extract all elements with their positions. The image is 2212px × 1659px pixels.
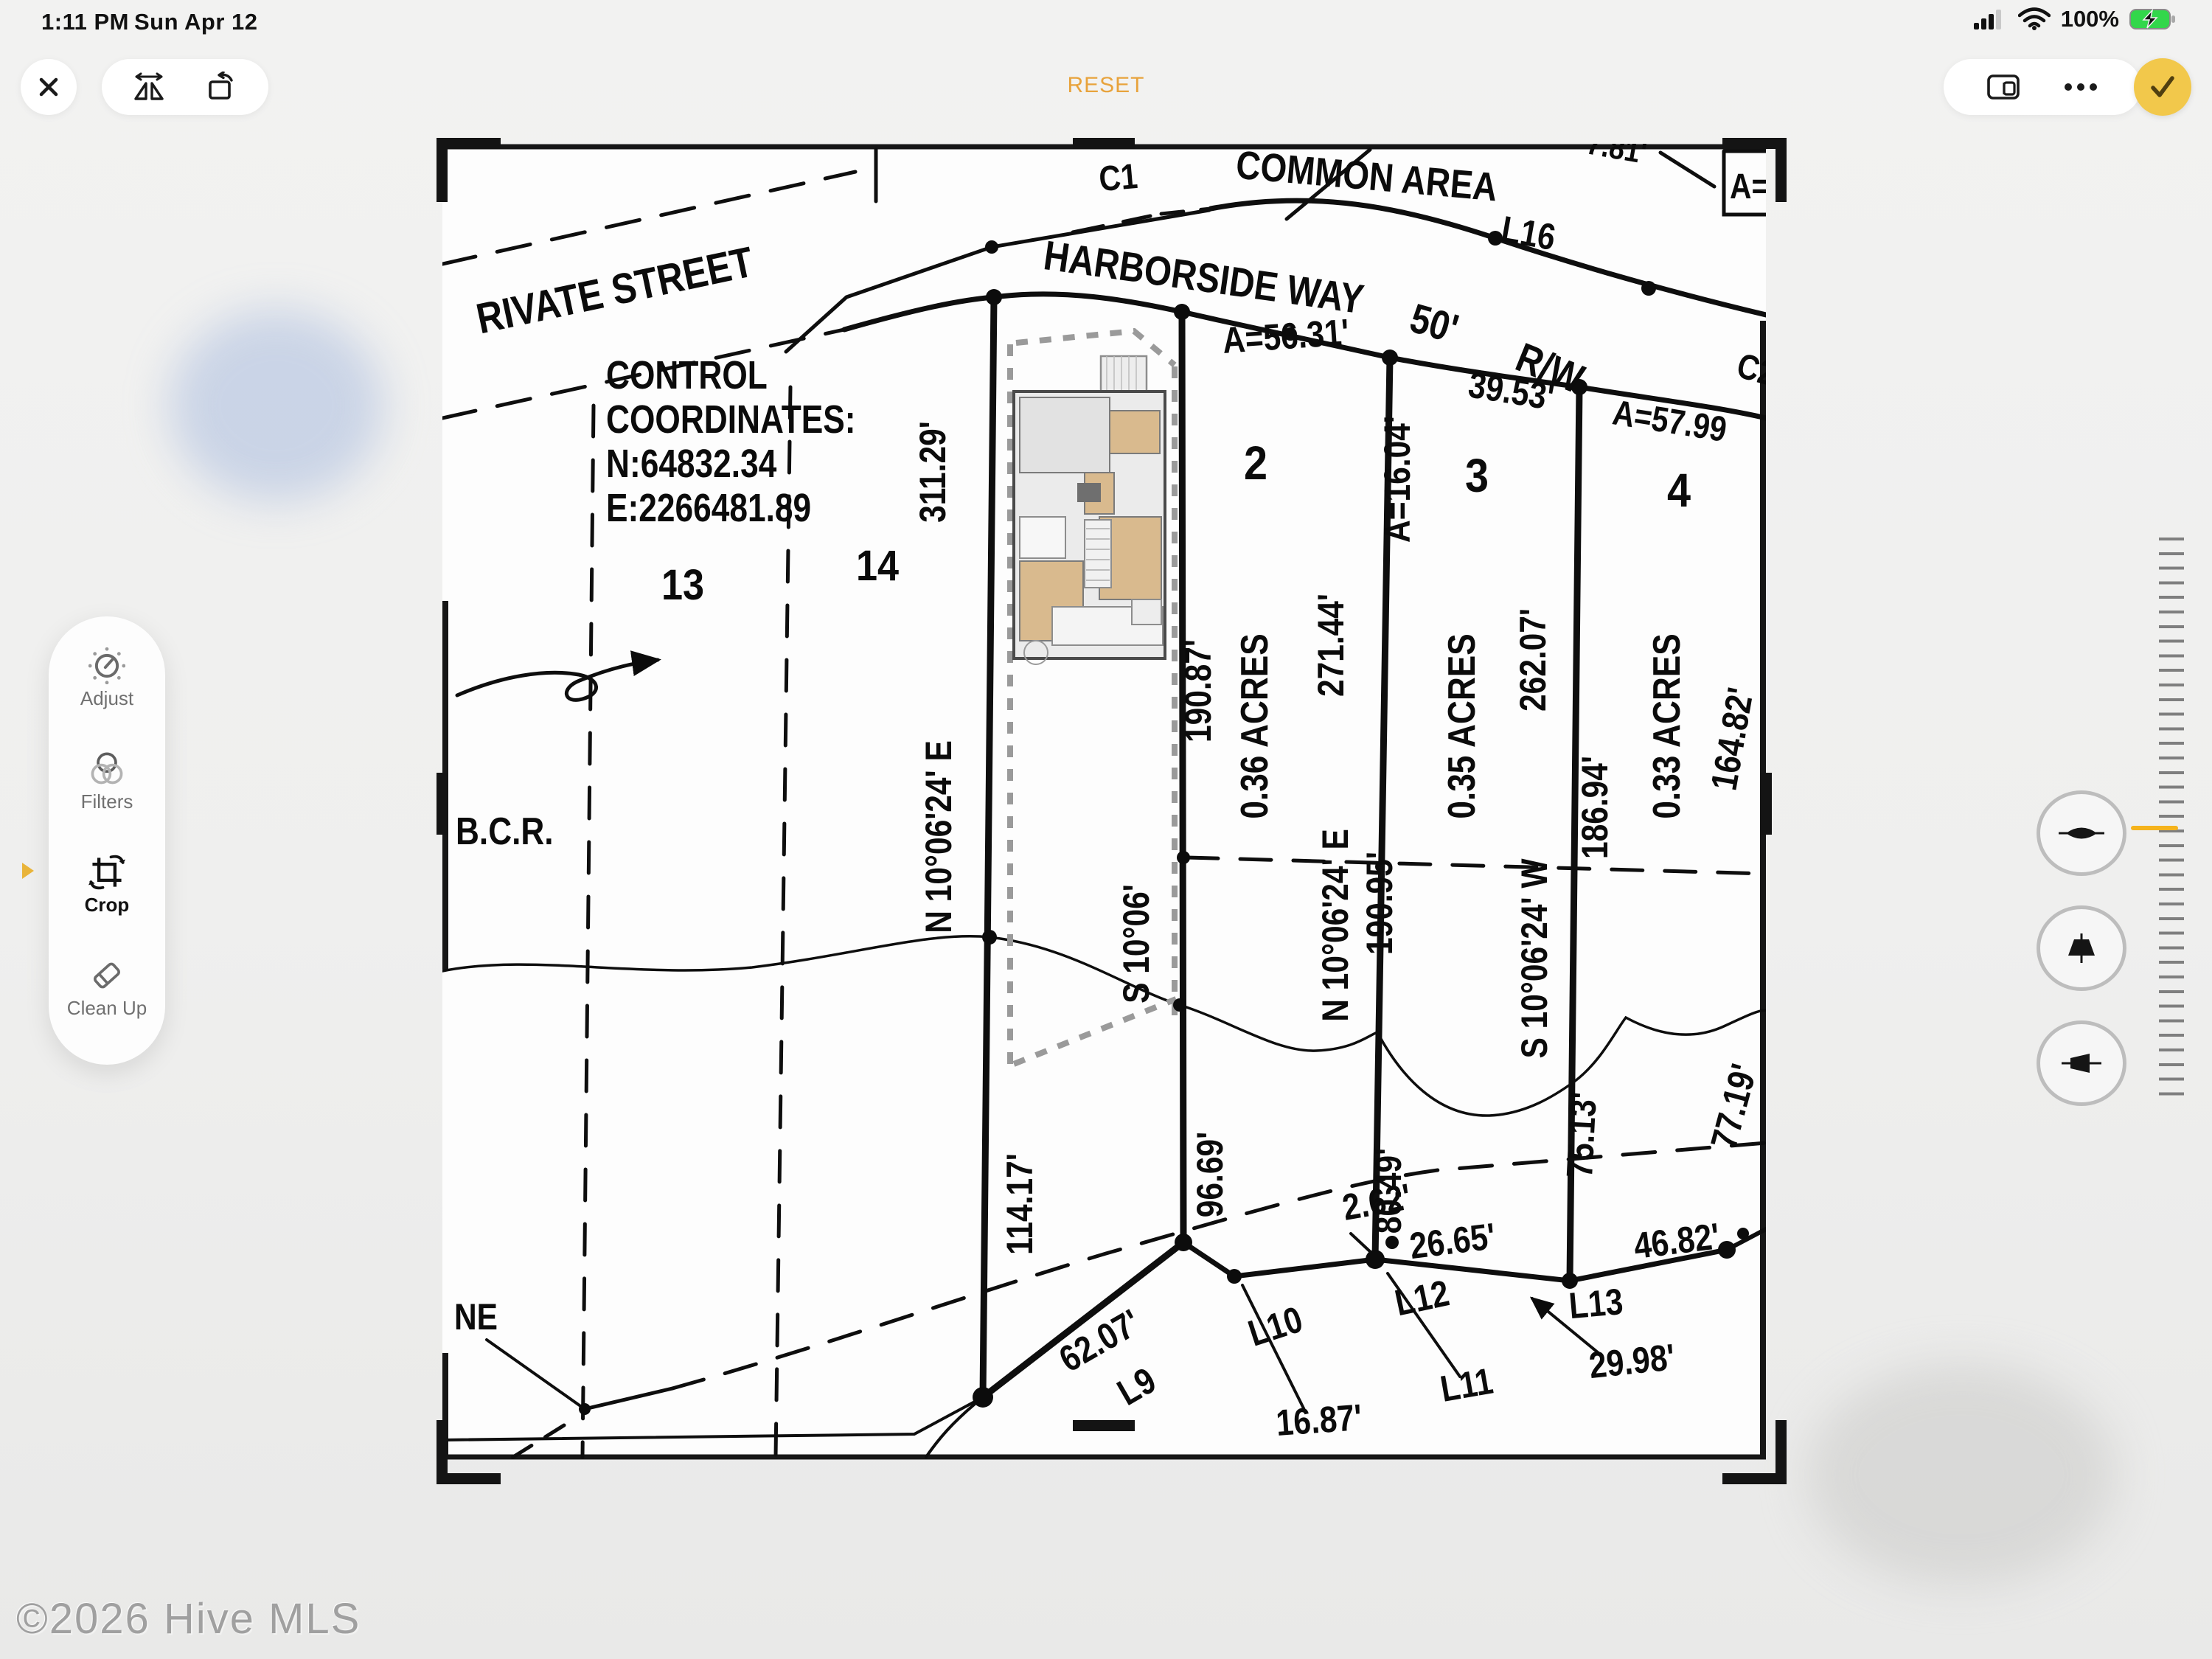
map-label-bearing-b: S 10°06': [1116, 884, 1157, 1004]
floor-plan-deck: [1101, 356, 1147, 392]
map-label-bcr: B.C.R.: [456, 810, 554, 853]
aspect-more-group: [1944, 59, 2141, 115]
map-label-2665: 26.65': [1408, 1215, 1498, 1267]
map-label-19087: 190.87': [1178, 639, 1219, 742]
map-label-18694: 186.94': [1574, 756, 1615, 859]
active-tool-marker: [22, 863, 34, 879]
node-dot: [1227, 1269, 1242, 1284]
vertical-perspective-icon: [2061, 932, 2102, 964]
map-label-c2: C2: [1733, 347, 1766, 394]
map-label-9669: 96.69': [1189, 1132, 1231, 1217]
bottom-thin-line: [926, 1397, 983, 1457]
lot-line-a: [983, 297, 994, 1397]
map-label-l13: L13: [1568, 1281, 1625, 1326]
control-line-3: N:64832.34: [606, 442, 777, 486]
map-label-bearing-c: N 10°06'24' E: [1315, 829, 1356, 1022]
status-date: Sun Apr 12: [134, 9, 258, 35]
map-label-private-street: RIVATE STREET: [473, 238, 758, 344]
map-label-16482: 164.82': [1703, 684, 1761, 793]
edit-tool-rail: Adjust Filters Crop Clean Up: [49, 616, 165, 1065]
rotate-icon[interactable]: [205, 72, 237, 102]
map-label-lot4: 4: [1667, 464, 1691, 516]
status-time: 1:11 PM: [41, 9, 129, 35]
node-dot: [1175, 1234, 1192, 1251]
straighten-button[interactable]: [2037, 790, 2126, 876]
ne-leader-line: [487, 1340, 585, 1409]
horizontal-perspective-icon: [2060, 1047, 2103, 1079]
wifi-icon: [2018, 7, 2051, 31]
status-bar: 1:11 PM Sun Apr 12 100%: [0, 0, 2212, 41]
map-label-c1: C1: [1097, 157, 1139, 199]
map-label-l12: L12: [1391, 1272, 1453, 1324]
straighten-icon: [2059, 818, 2104, 849]
plat-map-svg: RIVATE STREET HARBORSIDE WAY 50' R/W COM…: [442, 144, 1766, 1460]
node-dot: [1641, 281, 1656, 296]
map-label-ne: NE: [454, 1296, 498, 1338]
map-label-7719: 77.19': [1703, 1060, 1764, 1153]
floor-plan-stairs: [1085, 520, 1111, 588]
node-dot: [1385, 1236, 1399, 1249]
crop-handle-left[interactable]: [437, 773, 448, 835]
node-dot: [986, 289, 1002, 305]
map-label-acres2: 0.36 ACRES: [1234, 633, 1276, 818]
tool-crop-label: Crop: [49, 894, 165, 917]
map-label-31129: 311.29': [912, 421, 953, 523]
node-dot: [579, 1403, 591, 1415]
floor-plan-room-tan: [1110, 411, 1160, 453]
branch-line: [1660, 153, 1714, 187]
map-label-lot2: 2: [1244, 437, 1267, 489]
map-label-a1604: A=16.04': [1377, 416, 1418, 543]
map-label-lot14: 14: [856, 541, 899, 589]
tool-adjust[interactable]: Adjust: [49, 647, 165, 710]
node-dot: [1737, 1228, 1749, 1239]
dashed-horizontal-line: [1187, 858, 1766, 874]
map-label-27144: 271.44': [1310, 594, 1352, 697]
tool-cleanup[interactable]: Clean Up: [49, 957, 165, 1020]
map-label-26207: 262.07': [1512, 608, 1554, 712]
control-line-2: COORDINATES:: [606, 397, 856, 442]
crop-handle-top-left[interactable]: [437, 138, 501, 202]
map-label-2998: 29.98': [1587, 1336, 1677, 1386]
bottom-thin-line: [442, 1397, 983, 1440]
node-dot: [1173, 998, 1186, 1012]
map-label-harborside-way: HARBORSIDE WAY: [1041, 232, 1367, 323]
floor-plan-room: [1020, 397, 1110, 473]
l10-line: [1183, 1242, 1375, 1276]
control-coordinates-block: CONTROL COORDINATES: N:64832.34 E:226648…: [606, 353, 856, 530]
aspect-ratio-icon[interactable]: [1986, 72, 2020, 102]
map-label-a5631: A=56.31': [1221, 311, 1350, 361]
map-label-l16: L16: [1498, 208, 1559, 258]
background-blur-blob: [1806, 1364, 2116, 1585]
tool-filters-label: Filters: [49, 790, 165, 813]
crop-handle-bottom-right[interactable]: [1722, 1420, 1787, 1484]
horizontal-perspective-button[interactable]: [2037, 1020, 2126, 1106]
dashed-lot-line-14: [776, 387, 790, 1457]
dashed-lot-line-13: [582, 406, 594, 1457]
battery-charging-icon: [2129, 7, 2177, 31]
lot-line-b: [1182, 312, 1183, 1242]
tool-crop[interactable]: Crop: [49, 854, 165, 917]
checkmark-icon: [2146, 72, 2179, 102]
dial-indicator: [2131, 826, 2178, 830]
straighten-dial-ruler[interactable]: [2159, 538, 2184, 1107]
vertical-perspective-button[interactable]: [2037, 905, 2126, 991]
node-dot: [985, 240, 998, 254]
map-label-l9: L9: [1110, 1359, 1163, 1413]
node-dot: [1366, 1250, 1385, 1269]
crop-photo-area[interactable]: RIVATE STREET HARBORSIDE WAY 50' R/W COM…: [442, 144, 1766, 1460]
floor-plan-overlay: [1014, 356, 1165, 664]
close-button[interactable]: [21, 59, 77, 115]
private-street-north-dashed-line: [442, 172, 855, 264]
crop-handle-top-right[interactable]: [1722, 138, 1787, 202]
node-dot: [973, 1387, 993, 1408]
floor-plan-room: [1020, 517, 1065, 558]
flip-rotate-group: [102, 59, 268, 115]
cellular-signal-icon: [1974, 7, 2008, 31]
reset-button[interactable]: RESET: [1032, 73, 1180, 98]
map-label-lot3: 3: [1465, 449, 1489, 501]
tool-filters[interactable]: Filters: [49, 751, 165, 813]
leader-262: [1351, 1234, 1373, 1254]
map-label-19095: 190.95': [1359, 852, 1400, 955]
map-label-l11: L11: [1437, 1360, 1496, 1409]
map-label-11417: 114.17': [999, 1153, 1040, 1255]
node-dot: [1177, 851, 1190, 864]
close-icon: [35, 73, 63, 101]
filters-icon: [88, 751, 125, 787]
l9-line: [983, 1242, 1183, 1397]
squiggle-arrow: [457, 660, 658, 700]
map-label-50ft: 50': [1405, 295, 1464, 352]
flip-horizontal-icon[interactable]: [133, 72, 165, 102]
map-label-1687: 16.87': [1275, 1397, 1363, 1444]
map-label-acres3: 0.35 ACRES: [1441, 633, 1484, 818]
control-line-1: CONTROL: [606, 353, 768, 397]
floor-plan-steps: [1132, 599, 1161, 625]
adjust-dial-icon: [88, 647, 125, 684]
node-dot: [1382, 349, 1398, 366]
mls-watermark: ©2026 Hive MLS: [16, 1594, 361, 1644]
node-dot: [1174, 304, 1190, 320]
background-blur-blob: [170, 310, 383, 501]
more-options-icon[interactable]: [2063, 82, 2098, 92]
battery-percent-label: 100%: [2061, 6, 2119, 32]
crop-handle-right[interactable]: [1761, 773, 1772, 835]
floor-plan-fixture: [1077, 483, 1101, 502]
map-label-acres4: 0.33 ACRES: [1646, 633, 1688, 818]
crop-handle-top[interactable]: [1073, 138, 1135, 149]
map-label-7513: 75.13': [1559, 1091, 1604, 1178]
crop-handle-bottom[interactable]: [1073, 1420, 1135, 1431]
map-label-781: 7.81': [1584, 144, 1649, 171]
status-right-cluster: 100%: [1974, 6, 2177, 32]
node-dot: [982, 930, 997, 945]
envelope-bottom: [1014, 999, 1176, 1064]
survey-lines: [442, 150, 1766, 1460]
crop-handle-bottom-left[interactable]: [437, 1420, 501, 1484]
map-label-bearing-d: S 10°06'24' W: [1514, 858, 1555, 1058]
envelope-top: [1016, 331, 1175, 365]
map-label-a5799: A=57.99: [1610, 393, 1730, 449]
done-button[interactable]: [2134, 58, 2191, 116]
clean-up-eraser-icon: [88, 957, 125, 994]
map-label-4682: 46.82': [1632, 1215, 1722, 1267]
tool-cleanup-label: Clean Up: [49, 997, 165, 1020]
boundary-solid-start: [585, 1388, 672, 1409]
tool-adjust-label: Adjust: [49, 687, 165, 710]
map-label-lot13: 13: [661, 560, 704, 608]
map-label-bearing-a: N 10°06'24' E: [918, 740, 959, 933]
crop-icon: [88, 854, 125, 891]
control-line-4: E:2266481.89: [606, 486, 811, 530]
